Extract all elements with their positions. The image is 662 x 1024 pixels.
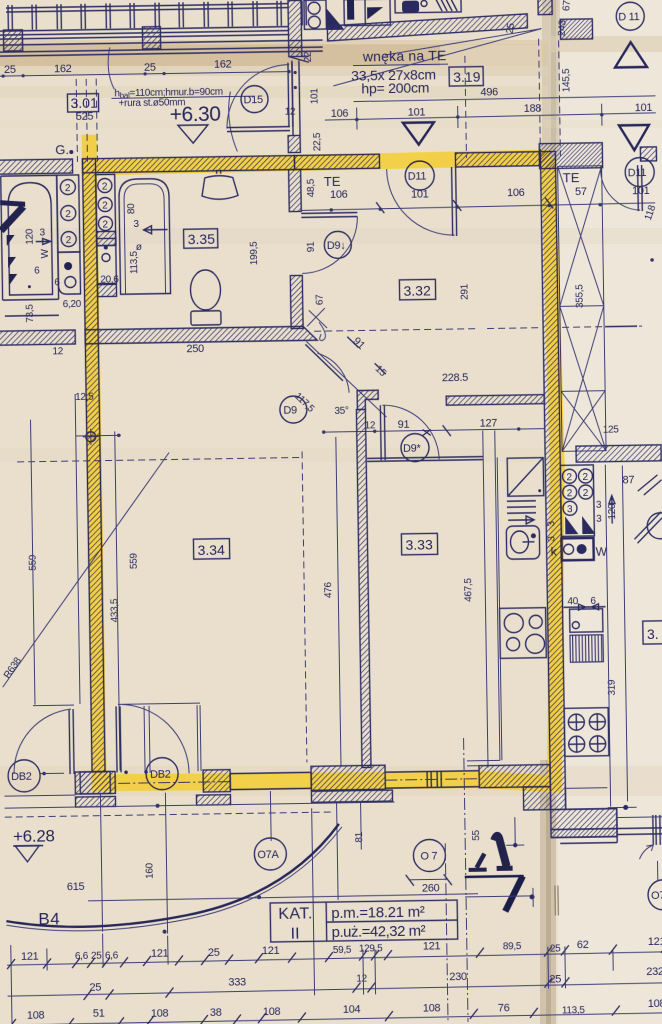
svg-text:3: 3 (567, 504, 573, 515)
svg-text:121: 121 (648, 936, 662, 948)
svg-text:101: 101 (408, 106, 426, 118)
svg-text:12: 12 (52, 346, 63, 357)
svg-text:12: 12 (285, 107, 296, 118)
svg-text:3.35: 3.35 (188, 231, 216, 247)
svg-text:106: 106 (507, 187, 525, 199)
svg-text:145,5: 145,5 (561, 68, 572, 92)
svg-text:67: 67 (561, 0, 573, 11)
svg-text:3: 3 (596, 514, 602, 525)
svg-text:II: II (290, 926, 299, 943)
svg-text:22,5: 22,5 (312, 132, 323, 151)
svg-text:25: 25 (550, 943, 561, 954)
svg-text:+6.30: +6.30 (170, 103, 221, 127)
svg-text:108: 108 (648, 998, 662, 1010)
svg-text:2: 2 (102, 181, 108, 192)
svg-text:121: 121 (262, 945, 280, 957)
svg-text:6: 6 (34, 266, 40, 277)
svg-text:3: 3 (133, 219, 139, 230)
svg-text:38: 38 (210, 1007, 222, 1019)
svg-text:108: 108 (27, 1010, 45, 1022)
svg-text:199,5: 199,5 (249, 241, 260, 265)
svg-text:559: 559 (129, 552, 140, 569)
svg-text:160: 160 (144, 862, 155, 879)
svg-text:260: 260 (422, 882, 440, 894)
svg-text:25: 25 (208, 947, 220, 959)
svg-text:6: 6 (54, 277, 60, 288)
svg-text:25: 25 (89, 982, 101, 994)
svg-text:101: 101 (635, 102, 653, 114)
svg-text:2: 2 (66, 235, 72, 246)
svg-text:101: 101 (411, 188, 429, 200)
svg-text:KAT.: KAT. (278, 905, 313, 923)
svg-text:B4: B4 (38, 909, 60, 928)
svg-text:496: 496 (480, 86, 498, 98)
svg-text:p.m.=18.21 m²: p.m.=18.21 m² (331, 904, 425, 922)
svg-text:O7A: O7A (651, 890, 662, 902)
svg-text:113,5: 113,5 (562, 1005, 586, 1016)
svg-text:121: 121 (151, 948, 169, 960)
svg-text:57: 57 (575, 186, 587, 198)
svg-text:3.01: 3.01 (70, 95, 98, 111)
svg-text:6,20: 6,20 (63, 299, 82, 310)
svg-text:80: 80 (126, 203, 137, 214)
svg-text:228.5: 228.5 (442, 372, 468, 384)
svg-text:O 7: O 7 (420, 850, 437, 862)
svg-text:wnęka na TE: wnęka na TE (362, 47, 447, 64)
svg-text:101: 101 (309, 88, 320, 105)
svg-text:188: 188 (524, 103, 542, 115)
svg-text:p.uż.=42,32 m²: p.uż.=42,32 m² (331, 923, 425, 941)
svg-text:D9*: D9* (403, 443, 422, 455)
svg-text:106: 106 (330, 189, 348, 201)
svg-text:243: 243 (557, 19, 569, 36)
svg-text:W: W (596, 545, 608, 559)
svg-text:6,6: 6,6 (105, 950, 119, 961)
svg-text:291: 291 (459, 283, 470, 300)
svg-text:3: 3 (596, 500, 602, 511)
svg-text:DB2: DB2 (11, 771, 32, 783)
svg-text:35°: 35° (334, 406, 349, 417)
svg-text:3.34: 3.34 (197, 542, 225, 558)
svg-text:108: 108 (151, 1008, 169, 1020)
svg-text:121: 121 (423, 940, 441, 952)
svg-text:91: 91 (398, 419, 410, 431)
svg-text:91: 91 (306, 241, 317, 252)
svg-text:55: 55 (471, 829, 482, 840)
svg-text:62: 62 (577, 939, 589, 951)
svg-text:D11: D11 (628, 167, 647, 179)
svg-text:73,5: 73,5 (25, 304, 36, 323)
svg-text:3.33: 3.33 (405, 536, 433, 552)
svg-text:433,5: 433,5 (109, 598, 120, 622)
svg-text:615: 615 (67, 881, 85, 893)
svg-text:25: 25 (4, 64, 16, 76)
svg-text:121: 121 (21, 951, 39, 963)
svg-text:162: 162 (54, 63, 72, 75)
svg-text:89,5: 89,5 (503, 941, 522, 952)
svg-text:3.19: 3.19 (453, 69, 481, 85)
svg-text:81: 81 (354, 831, 365, 842)
svg-text:2: 2 (567, 488, 573, 499)
svg-text:D 11: D 11 (618, 11, 640, 23)
svg-text:125: 125 (603, 424, 620, 435)
svg-text:113,5: 113,5 (129, 250, 140, 274)
svg-text:2: 2 (583, 488, 589, 499)
svg-text:O7A: O7A (257, 849, 279, 861)
svg-text:2: 2 (65, 209, 71, 220)
svg-text:467,5: 467,5 (463, 577, 474, 601)
svg-text:51: 51 (93, 1008, 105, 1020)
svg-text:12: 12 (356, 973, 367, 984)
svg-text:108: 108 (263, 1006, 281, 1018)
svg-text:333: 333 (228, 976, 246, 988)
svg-text:hp= 200cm: hp= 200cm (361, 79, 429, 96)
svg-text:106: 106 (331, 108, 349, 120)
svg-text:2: 2 (582, 472, 588, 483)
svg-text:104: 104 (343, 1004, 361, 1016)
svg-text:59,5: 59,5 (333, 945, 352, 956)
svg-text:87: 87 (622, 474, 634, 486)
svg-text:76: 76 (498, 1002, 510, 1014)
svg-text:2: 2 (102, 200, 108, 211)
svg-text:+6.28: +6.28 (13, 826, 55, 846)
svg-text:120: 120 (25, 228, 36, 245)
svg-text:3.32: 3.32 (403, 282, 431, 298)
svg-text:355,5: 355,5 (574, 284, 585, 308)
svg-text:250: 250 (186, 343, 204, 355)
svg-text:40: 40 (567, 596, 578, 607)
svg-text:D9: D9 (283, 405, 297, 417)
svg-text:TE: TE (324, 174, 341, 189)
svg-text:2: 2 (65, 183, 71, 194)
svg-text:3.: 3. (647, 626, 659, 642)
svg-text:D15: D15 (243, 94, 263, 106)
svg-text:W: W (40, 248, 51, 258)
svg-text:525: 525 (76, 111, 94, 123)
svg-text:230: 230 (449, 971, 467, 983)
svg-text:162: 162 (214, 59, 232, 71)
svg-text:2: 2 (102, 219, 108, 230)
svg-text:ø: ø (136, 242, 142, 253)
svg-text:D9↓: D9↓ (327, 240, 346, 252)
svg-text:3: 3 (39, 227, 45, 238)
svg-text:108: 108 (423, 1002, 441, 1014)
svg-text:6,6: 6,6 (75, 951, 89, 962)
svg-text:2: 2 (566, 472, 572, 483)
svg-text:G.: G. (55, 142, 69, 157)
svg-text:127: 127 (480, 417, 498, 429)
svg-text:67: 67 (315, 294, 326, 305)
svg-text:25: 25 (144, 62, 156, 74)
svg-text:48,5: 48,5 (306, 178, 317, 197)
svg-text:476: 476 (323, 581, 334, 598)
svg-text:D11: D11 (408, 170, 427, 182)
svg-text:101: 101 (632, 185, 650, 197)
svg-text:232: 232 (646, 966, 662, 978)
svg-text:TE: TE (563, 170, 580, 185)
